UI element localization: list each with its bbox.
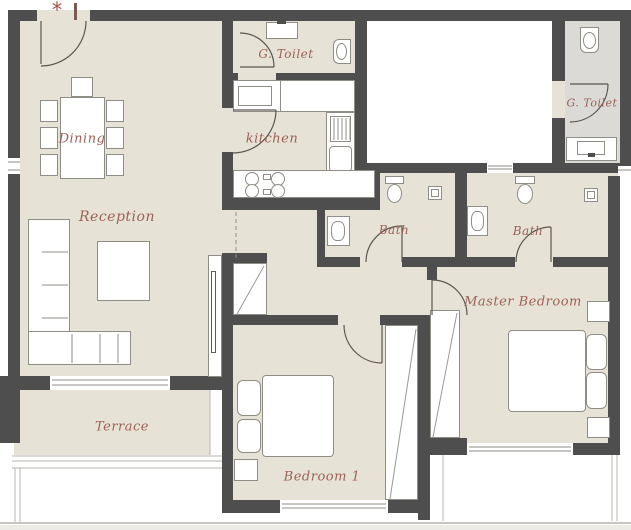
wall: [170, 376, 222, 390]
gap-terrace-bedroom: [210, 390, 222, 455]
wall-closet-top: [222, 253, 267, 263]
room-label-dining: Dining: [59, 133, 106, 146]
wardrobe-master: [430, 310, 460, 438]
nightstand-master: [587, 417, 610, 438]
nightstand-master: [587, 301, 610, 322]
burner: [271, 184, 285, 198]
window-reception-terrace: [50, 376, 170, 390]
room-label-terrace: Terrace: [95, 421, 149, 434]
terrace-railing-left: [15, 468, 20, 523]
dining-chair: [40, 154, 58, 176]
sofa-horizontal: [28, 331, 131, 365]
dining-chair: [40, 100, 58, 122]
wall-wardrobe-divider: [418, 315, 430, 520]
wall-master-bottom: [430, 443, 467, 455]
wall-right-upper: [620, 10, 631, 176]
kitchen-appliance: [238, 86, 272, 106]
room-label-master-bedroom: Master Bedroom: [464, 296, 582, 309]
toilet-bowl: [336, 43, 347, 60]
wall-top: [90, 10, 631, 21]
pillow: [237, 380, 261, 416]
toilet-bowl-bath2: [517, 184, 533, 204]
wall-joint-right: [618, 166, 631, 176]
window-bedroom1: [280, 500, 388, 513]
cooktop-knob: [263, 189, 271, 195]
ground-strip: [0, 525, 631, 530]
room-label-bedroom-1: Bedroom 1: [284, 471, 361, 484]
dining-chair: [106, 154, 124, 176]
bed-bedroom1: [262, 375, 334, 457]
counter-divider: [280, 80, 281, 112]
faucet: [277, 19, 286, 24]
entry-asterisk-mark: *: [48, 0, 66, 20]
wall-joint-left: [8, 158, 20, 174]
gap-below-terrace-wall: [0, 443, 14, 530]
wall: [552, 118, 565, 163]
faucet: [588, 153, 595, 157]
wall: [552, 21, 565, 81]
room-label-reception: Reception: [79, 210, 155, 224]
toilet-bowl: [583, 32, 596, 49]
cooktop-knob: [263, 174, 271, 180]
coffee-table: [97, 241, 150, 301]
window-master: [467, 443, 573, 455]
room-label-bath-1: Bath: [379, 224, 410, 236]
room-label-g-toilet-2: G. Toilet: [567, 98, 618, 109]
closet-corridor: [233, 263, 267, 315]
dining-chair: [71, 77, 93, 97]
outside-right: [620, 176, 631, 455]
dining-chair: [40, 127, 58, 149]
wall-bath-divider: [455, 173, 467, 267]
burner: [245, 184, 259, 198]
basin: [331, 221, 345, 241]
wardrobe-bedroom1: [385, 325, 418, 500]
wall: [388, 500, 430, 513]
pillow: [237, 419, 261, 453]
dining-chair: [106, 100, 124, 122]
pillow: [586, 334, 607, 370]
terrace-railing: [12, 456, 222, 468]
balcony-railing-master: [443, 455, 617, 521]
bed-master: [508, 330, 586, 412]
floor-drain-inner: [587, 191, 595, 199]
room-label-bath-2: Bath: [513, 225, 544, 237]
wall: [402, 257, 515, 267]
wall-kitchen-bottom: [222, 198, 375, 210]
toilet-tank-bath2: [515, 176, 535, 184]
void-room: [367, 21, 552, 163]
wall-left: [8, 13, 20, 376]
wall-bedroom1-bottom: [222, 500, 280, 513]
wall: [317, 257, 360, 267]
sink-drainer: [330, 116, 351, 142]
vanity-g-toilet-1: [266, 22, 298, 39]
dining-chair: [106, 127, 124, 149]
toilet-tank-bath1: [385, 176, 404, 184]
room-label-g-toilet-1: G. Toilet: [258, 48, 313, 60]
floor-plan-page: { "rooms": [ {"id": "dining", "label": "…: [0, 0, 631, 530]
toilet-bowl-bath1: [387, 184, 402, 203]
tv: [211, 271, 216, 353]
pillow: [586, 372, 607, 409]
kitchen-sink: [329, 146, 352, 172]
wall-bedroom1-top: [233, 315, 338, 325]
nightstand-bedroom1: [234, 459, 258, 481]
wall: [222, 21, 233, 108]
wall: [8, 376, 50, 390]
floor-drain-inner: [431, 189, 439, 197]
window-void-room: [487, 163, 513, 173]
wall: [427, 267, 437, 280]
wall: [222, 253, 233, 513]
entry-tick-mark: [74, 3, 77, 20]
basin: [471, 211, 484, 231]
room-label-kitchen: kitchen: [246, 133, 298, 146]
wall: [355, 21, 367, 173]
